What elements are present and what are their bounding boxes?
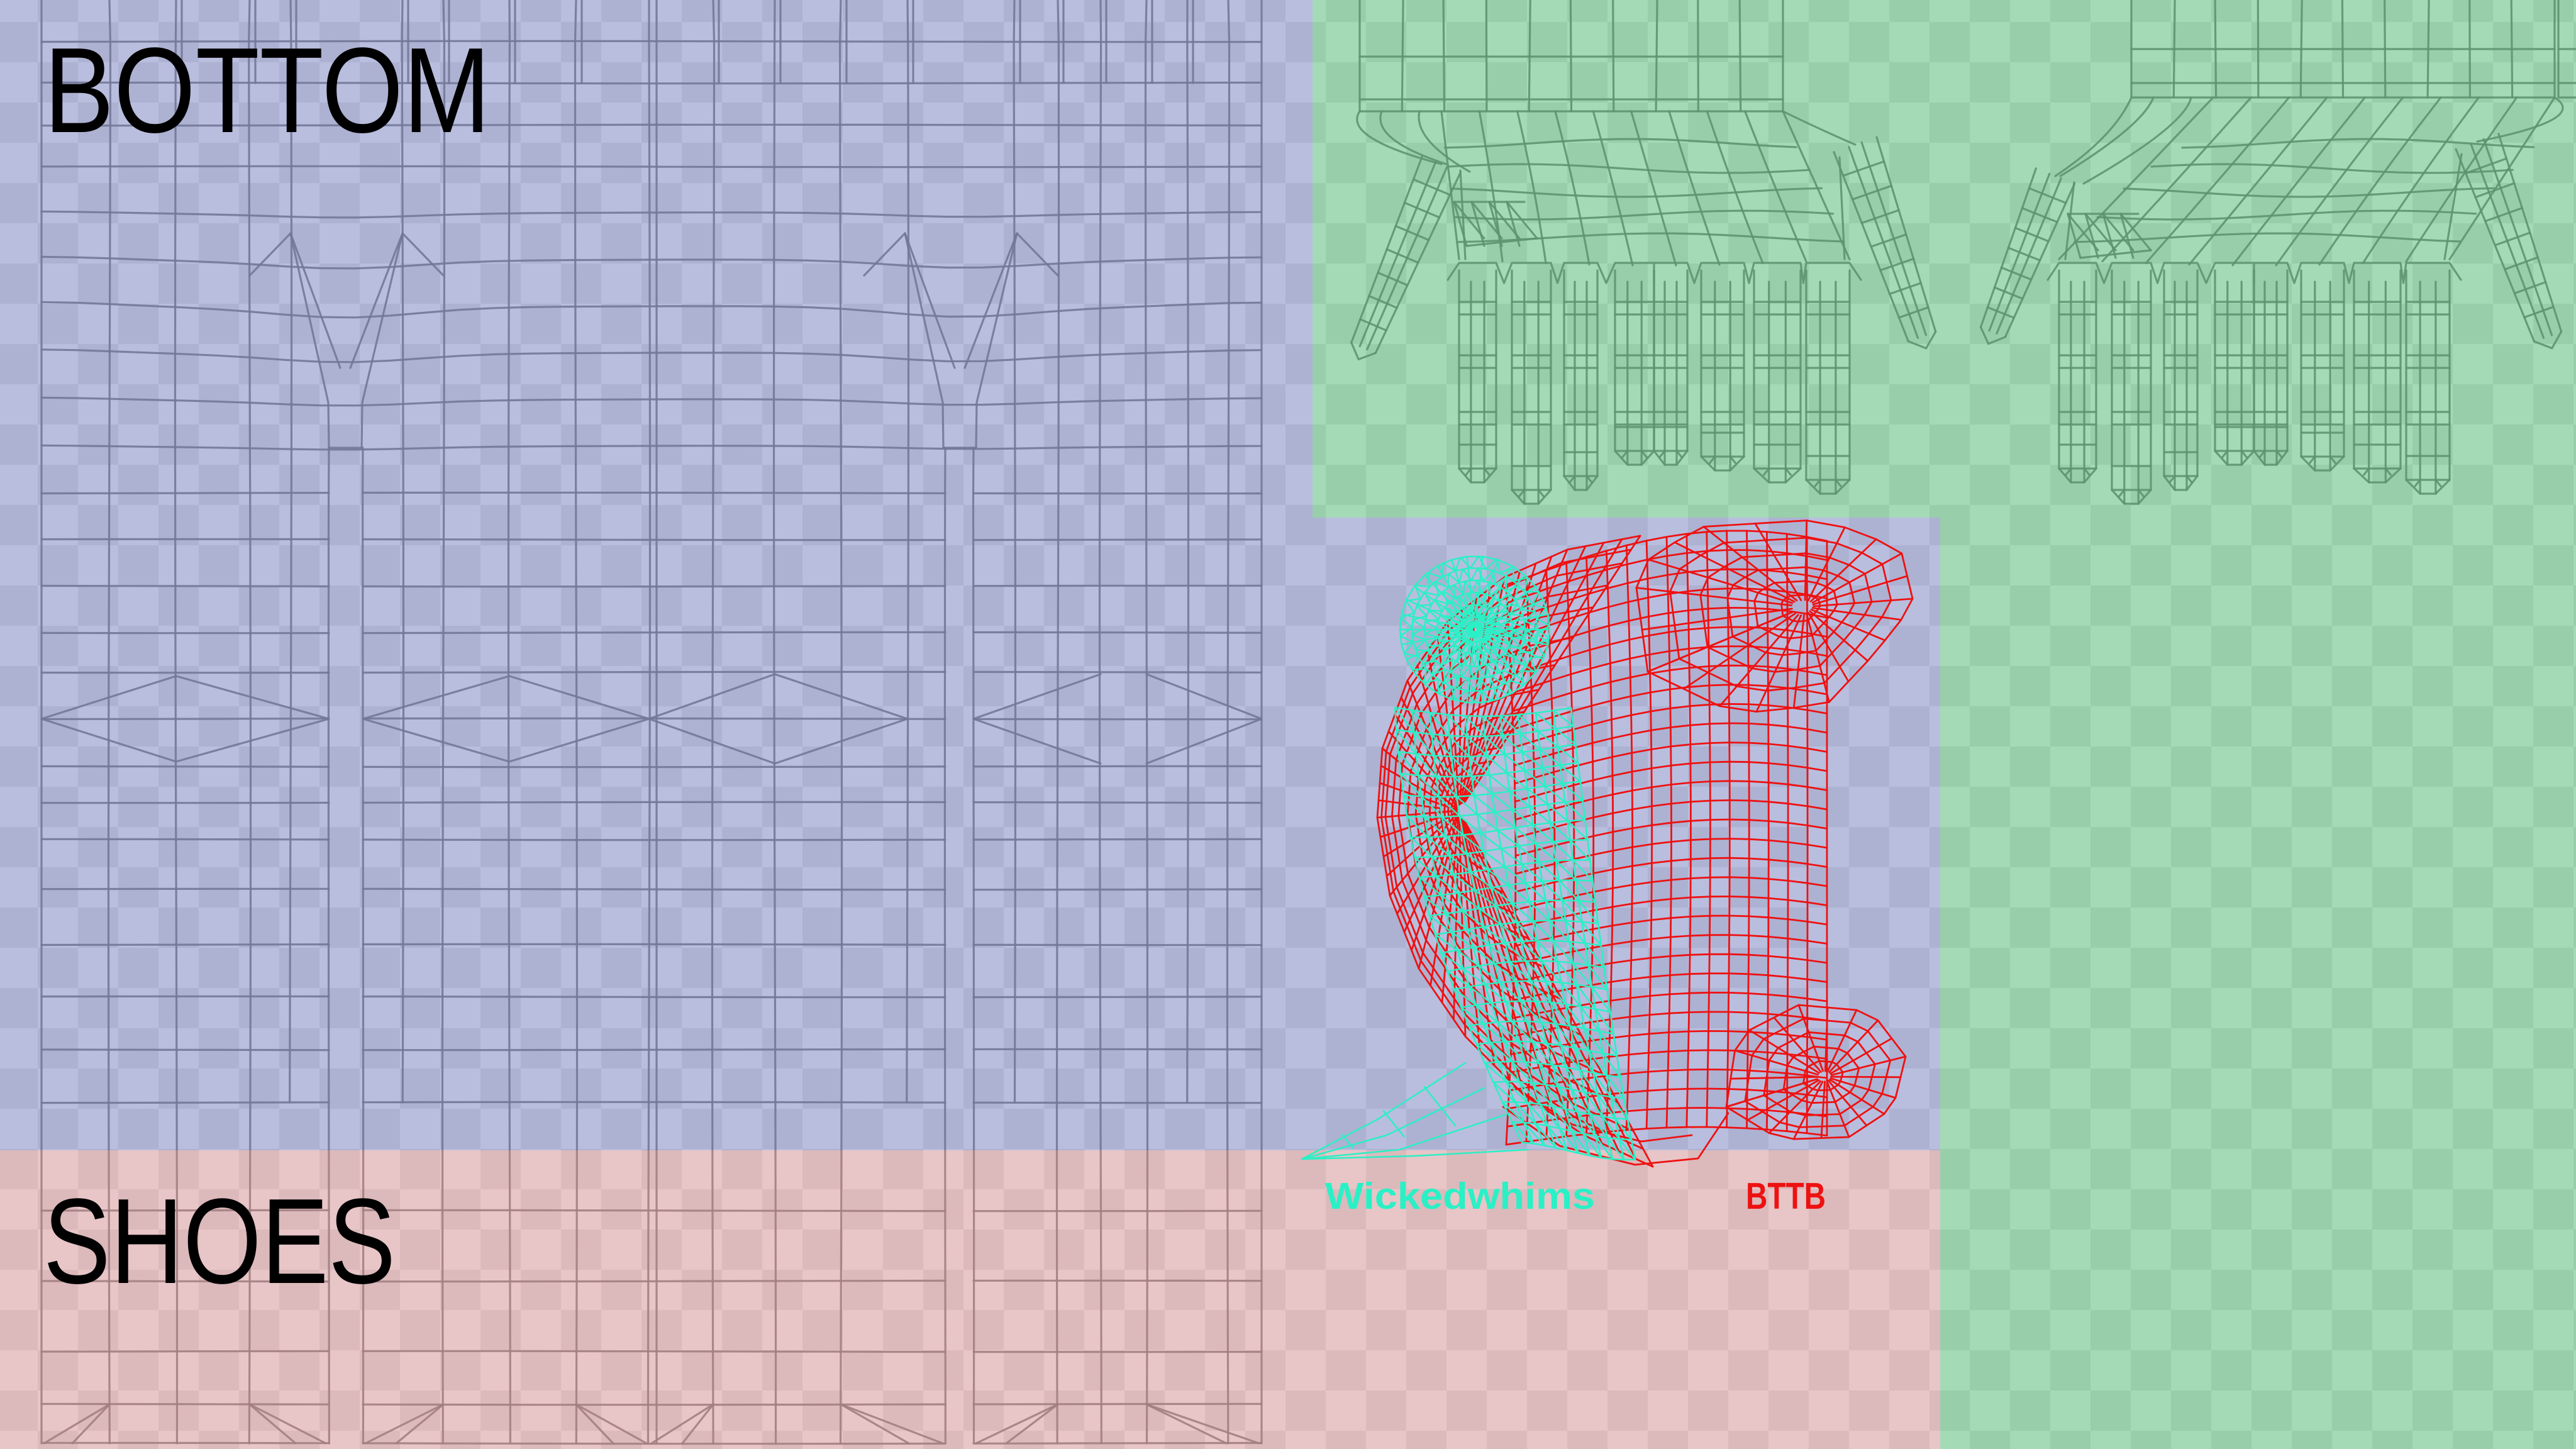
svg-text:BTTB: BTTB xyxy=(1746,1175,1826,1217)
svg-text:BOTTOM: BOTTOM xyxy=(44,22,491,158)
svg-text:Wickedwhims: Wickedwhims xyxy=(1325,1175,1595,1217)
svg-text:SHOES: SHOES xyxy=(43,1173,396,1309)
